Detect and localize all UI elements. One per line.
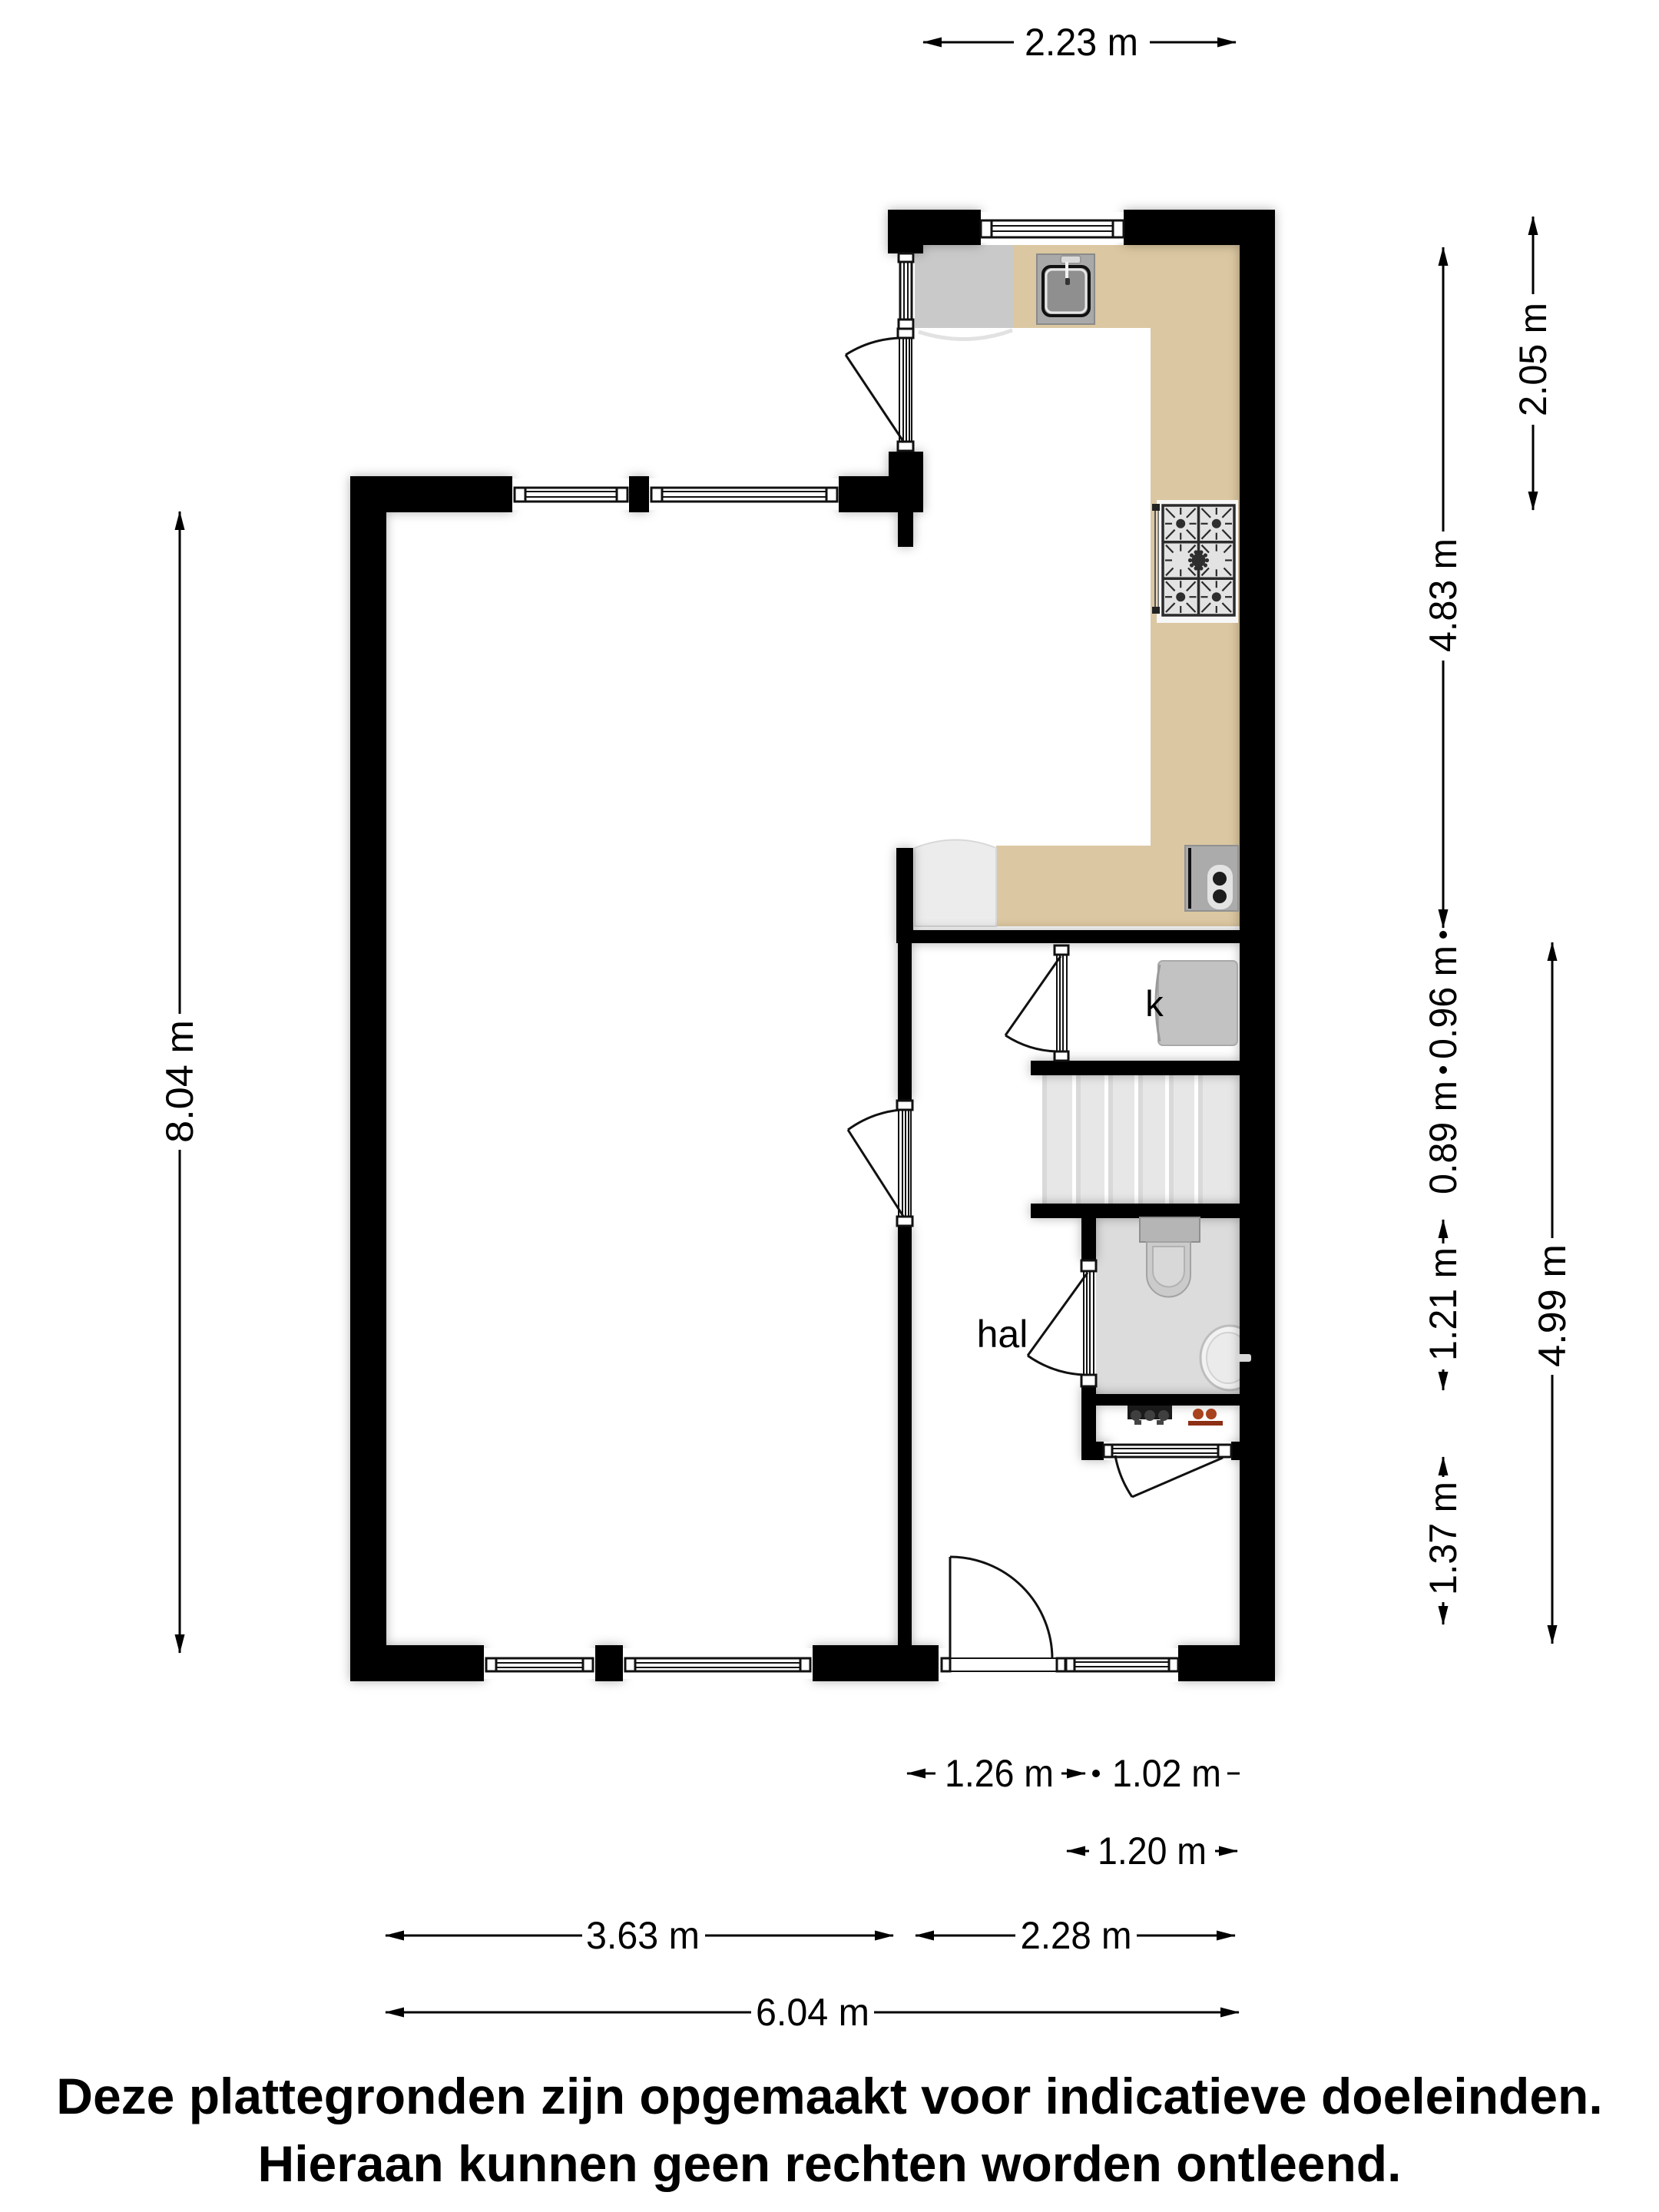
svg-text:k: k bbox=[1145, 983, 1164, 1024]
svg-text:1.21 m: 1.21 m bbox=[1422, 1247, 1465, 1361]
svg-text:2.05 m: 2.05 m bbox=[1512, 303, 1555, 416]
svg-text:3.63 m: 3.63 m bbox=[586, 1914, 700, 1957]
svg-text:6.04 m: 6.04 m bbox=[756, 1991, 869, 2034]
svg-text:8.04 m: 8.04 m bbox=[158, 1020, 201, 1143]
svg-text:Deze plattegronden zijn opgema: Deze plattegronden zijn opgemaakt voor i… bbox=[56, 2068, 1602, 2124]
svg-text:hal: hal bbox=[977, 1313, 1028, 1356]
svg-text:1.02 m: 1.02 m bbox=[1112, 1752, 1221, 1795]
svg-text:1.26 m: 1.26 m bbox=[945, 1752, 1054, 1795]
svg-text:1.20 m: 1.20 m bbox=[1098, 1830, 1207, 1873]
svg-text:4.99 m: 4.99 m bbox=[1531, 1244, 1574, 1367]
svg-text:4.83 m: 4.83 m bbox=[1422, 538, 1465, 652]
svg-text:Hieraan kunnen geen rechten wo: Hieraan kunnen geen rechten worden ontle… bbox=[258, 2135, 1402, 2192]
svg-text:0.96 m: 0.96 m bbox=[1422, 945, 1465, 1059]
svg-text:2.28 m: 2.28 m bbox=[1021, 1914, 1132, 1957]
svg-text:2.23 m: 2.23 m bbox=[1025, 21, 1138, 64]
svg-text:0.89 m: 0.89 m bbox=[1422, 1081, 1465, 1194]
svg-text:1.37 m: 1.37 m bbox=[1422, 1482, 1465, 1595]
